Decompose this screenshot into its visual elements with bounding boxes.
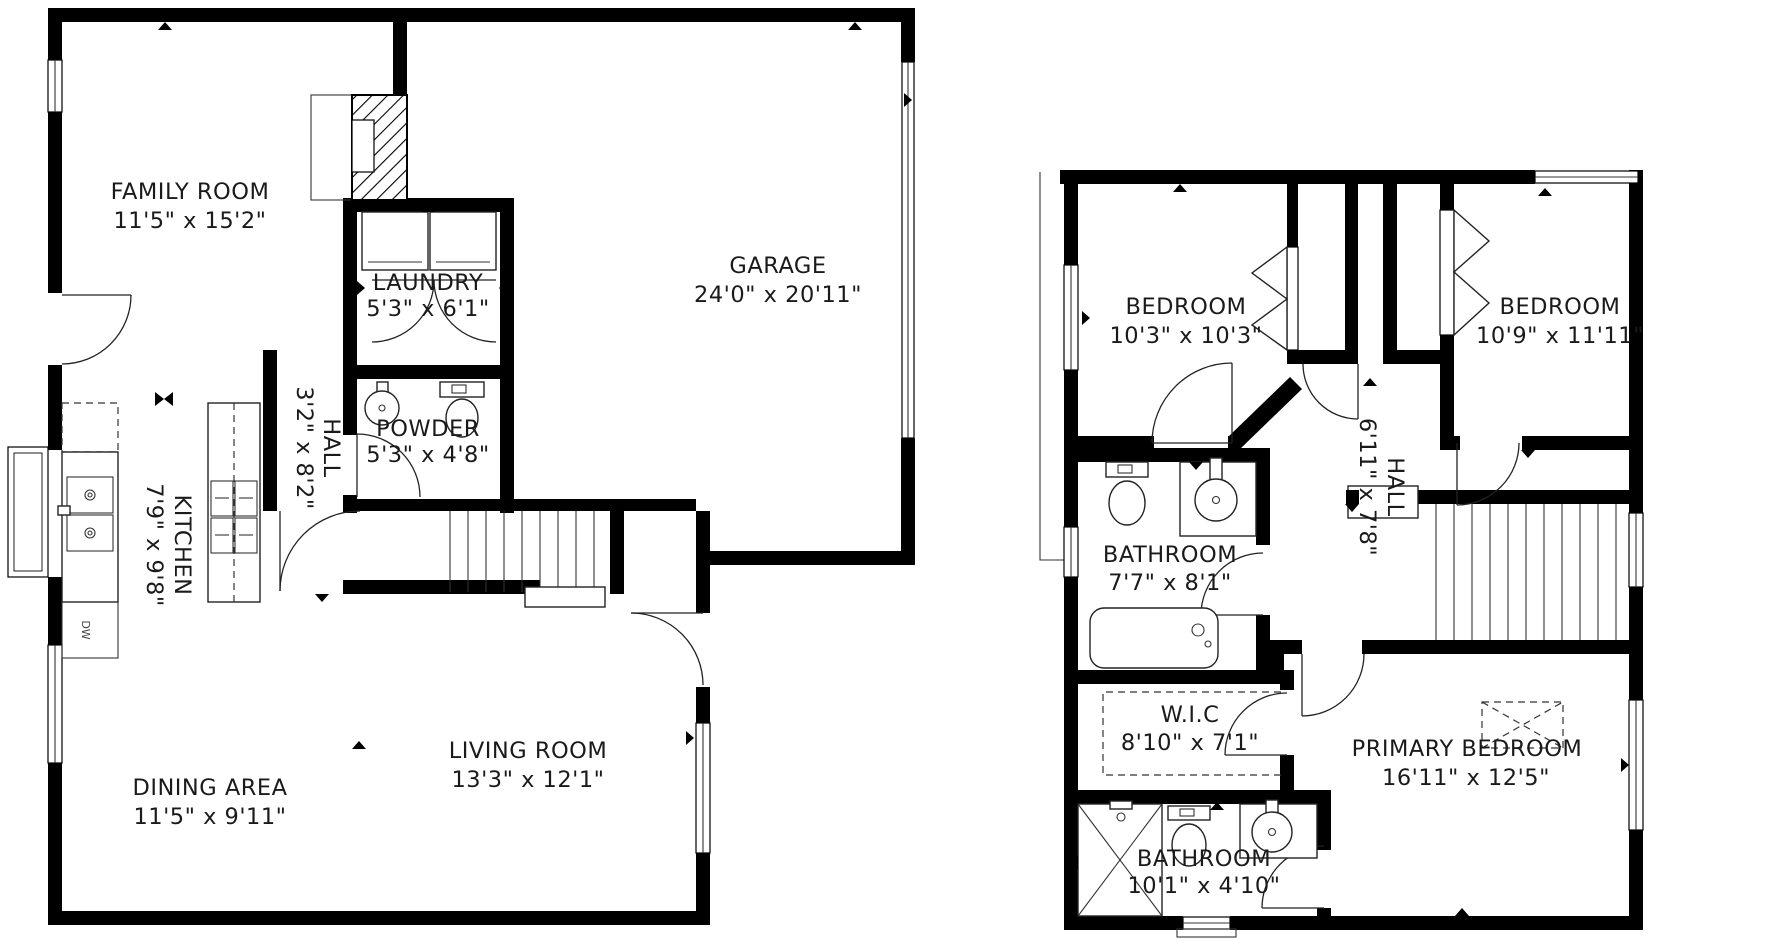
room-label-bedroom-1: BEDROOM [1126, 294, 1247, 320]
room-dims-living-room: 13'3" x 12'1" [451, 767, 604, 793]
footprint-outline [1040, 172, 1064, 560]
bathtub [1090, 608, 1218, 668]
window-bedroom1-left [1064, 265, 1078, 370]
kitchen-sink-counter [58, 452, 118, 602]
room-dims-powder: 5'3" x 4'8" [366, 442, 489, 468]
washer-dryer [362, 212, 496, 270]
window-living-room [696, 723, 710, 853]
room-label-primary-bedroom: PRIMARY BEDROOM [1352, 736, 1583, 762]
dishwasher: DW [62, 602, 118, 658]
window-dining-area [48, 645, 62, 763]
first-floor-plan: DW [8, 8, 915, 925]
room-label-garage: GARAGE [729, 253, 826, 279]
room-dims-bedroom-2: 10'9" x 11'11" [1476, 323, 1644, 349]
room-label-hall-2: HALL [1382, 457, 1408, 516]
upper-cabinets [62, 403, 118, 452]
room-dims-kitchen: 7'9" x 9'8" [141, 483, 167, 606]
window-bathroom2-bottom [1177, 917, 1236, 937]
primary-bedroom-door [1302, 654, 1364, 716]
kitchen-island-stove [208, 403, 260, 602]
room-dims-primary-bedroom: 16'11" x 12'5" [1382, 765, 1550, 791]
fireplace [311, 95, 407, 200]
window-family-room [48, 60, 62, 112]
room-dims-bathroom-2: 10'1" x 4'10" [1127, 873, 1280, 899]
room-label-family-room: FAMILY ROOM [111, 179, 270, 205]
room-dims-hall-1: 3'2" x 8'2" [291, 386, 317, 509]
room-label-powder: POWDER [376, 416, 480, 442]
bifold-bedroom2-closet [1440, 210, 1489, 335]
room-label-hall-1: HALL [318, 418, 344, 477]
room-label-dining-area: DINING AREA [133, 775, 288, 801]
room-dims-hall-2: 6'11" x 7'8" [1354, 418, 1380, 556]
room-dims-bathroom-1: 7'7" x 8'1" [1108, 570, 1231, 596]
second-floor-plan: BEDROOM 10'3" x 10'3" BEDROOM 10'9" x 11… [1040, 170, 1644, 937]
room-dims-dining-area: 11'5" x 9'11" [133, 804, 286, 830]
room-dims-wic: 8'10" x 7'1" [1121, 730, 1259, 756]
sink-bathroom1 [1180, 458, 1256, 536]
room-label-living-room: LIVING ROOM [449, 738, 608, 764]
room-label-bathroom-2: BATHROOM [1137, 846, 1271, 872]
room-dims-family-room: 11'5" x 15'2" [113, 208, 266, 234]
window-bathroom1-left [1064, 527, 1078, 577]
room-dims-garage: 24'0" x 20'11" [694, 282, 862, 308]
stair-landing [525, 587, 605, 607]
room-dims-bedroom-1: 10'3" x 10'3" [1109, 323, 1262, 349]
room-label-wic: W.I.C [1161, 702, 1220, 728]
window-primary-right [1629, 700, 1643, 830]
dishwasher-label: DW [79, 620, 92, 639]
front-door [631, 613, 703, 685]
hall-door [280, 511, 360, 591]
garage-door [902, 62, 914, 438]
floor-plan-drawing: DW [0, 0, 1776, 941]
garden-window-kitchen [8, 447, 48, 577]
window-bedroom2-top [1535, 171, 1638, 183]
room-label-bathroom-1: BATHROOM [1103, 542, 1237, 568]
side-entry-door [62, 295, 131, 364]
room-label-kitchen: KITCHEN [169, 495, 195, 596]
floor-plan-page: DW [0, 0, 1776, 941]
toilet-bathroom1 [1106, 462, 1148, 525]
bedroom1-door [1152, 363, 1232, 443]
linen-closet-door [1303, 364, 1358, 419]
room-label-laundry: LAUNDRY [373, 270, 484, 296]
room-label-bedroom-2: BEDROOM [1500, 294, 1621, 320]
window-stairwell-right [1629, 513, 1643, 587]
room-dims-laundry: 5'3" x 6'1" [366, 296, 489, 322]
